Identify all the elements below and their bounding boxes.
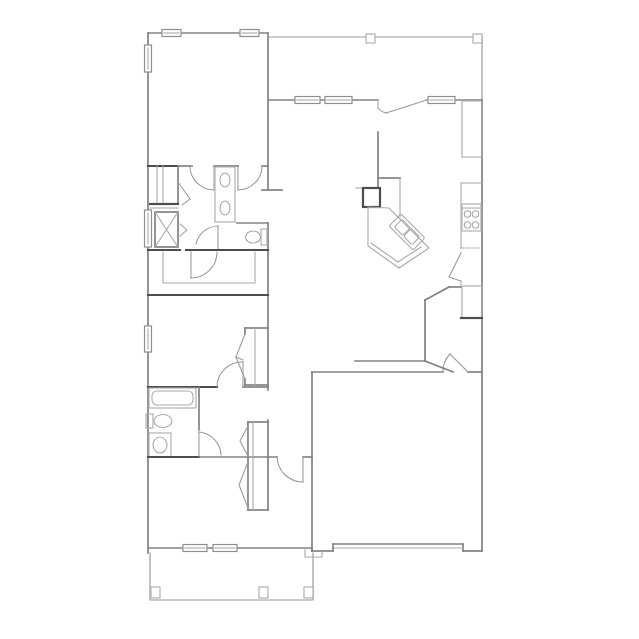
rear-porch-outline — [268, 37, 482, 100]
masterbath-door-arc — [190, 166, 214, 190]
hall-closet-bifold — [240, 426, 248, 456]
island-end-cabinet — [363, 188, 380, 207]
bed3-closet-bifold — [239, 462, 248, 508]
toilet-bowl — [246, 231, 261, 243]
linen-closet-door — [178, 182, 190, 199]
mud-angled-wall — [425, 287, 449, 300]
masterbath-door-arc — [238, 166, 262, 190]
rear-porch-post — [473, 34, 482, 43]
toilet2-bowl — [154, 415, 172, 428]
toilet2-tank — [146, 414, 153, 428]
pantry-door — [449, 253, 461, 281]
shower-door-notch — [180, 224, 187, 236]
toilet-tank — [261, 229, 267, 245]
bed2-closet-bifold — [236, 334, 245, 379]
front-porch-post — [304, 587, 313, 598]
floor-plan-canvas — [0, 0, 639, 639]
linen-closet-door — [182, 199, 190, 205]
pantry-cabinet — [462, 101, 482, 157]
refrigerator — [462, 286, 482, 318]
walkin-closet-shelf — [163, 252, 255, 283]
walkin-closet-door-arc — [191, 252, 217, 278]
back-door-leaf — [386, 100, 427, 113]
back-door-arc — [378, 108, 386, 113]
vanity-sink — [220, 201, 230, 215]
stove-burner — [464, 211, 470, 217]
kitchen-island-inner-edge — [371, 243, 421, 262]
front-porch-post — [151, 587, 160, 598]
garage-entry-door-leaf — [450, 354, 468, 372]
bath2-sink — [153, 437, 167, 453]
stove-burner — [472, 211, 478, 217]
front-porch-outline — [150, 553, 313, 600]
vanity-sink — [220, 173, 230, 187]
stove-burner — [464, 222, 470, 228]
stove-burner — [472, 222, 478, 228]
toilet-room-door-arc — [196, 226, 218, 244]
bathtub-inner — [152, 391, 193, 405]
double-vanity — [215, 167, 235, 222]
front-porch-post — [259, 587, 268, 598]
mud-angled-wall — [425, 361, 453, 372]
bed3-door-arc — [277, 457, 303, 482]
floor-plan — [0, 0, 639, 639]
rear-porch-post — [366, 34, 375, 43]
bath2-door-arc — [199, 432, 221, 455]
